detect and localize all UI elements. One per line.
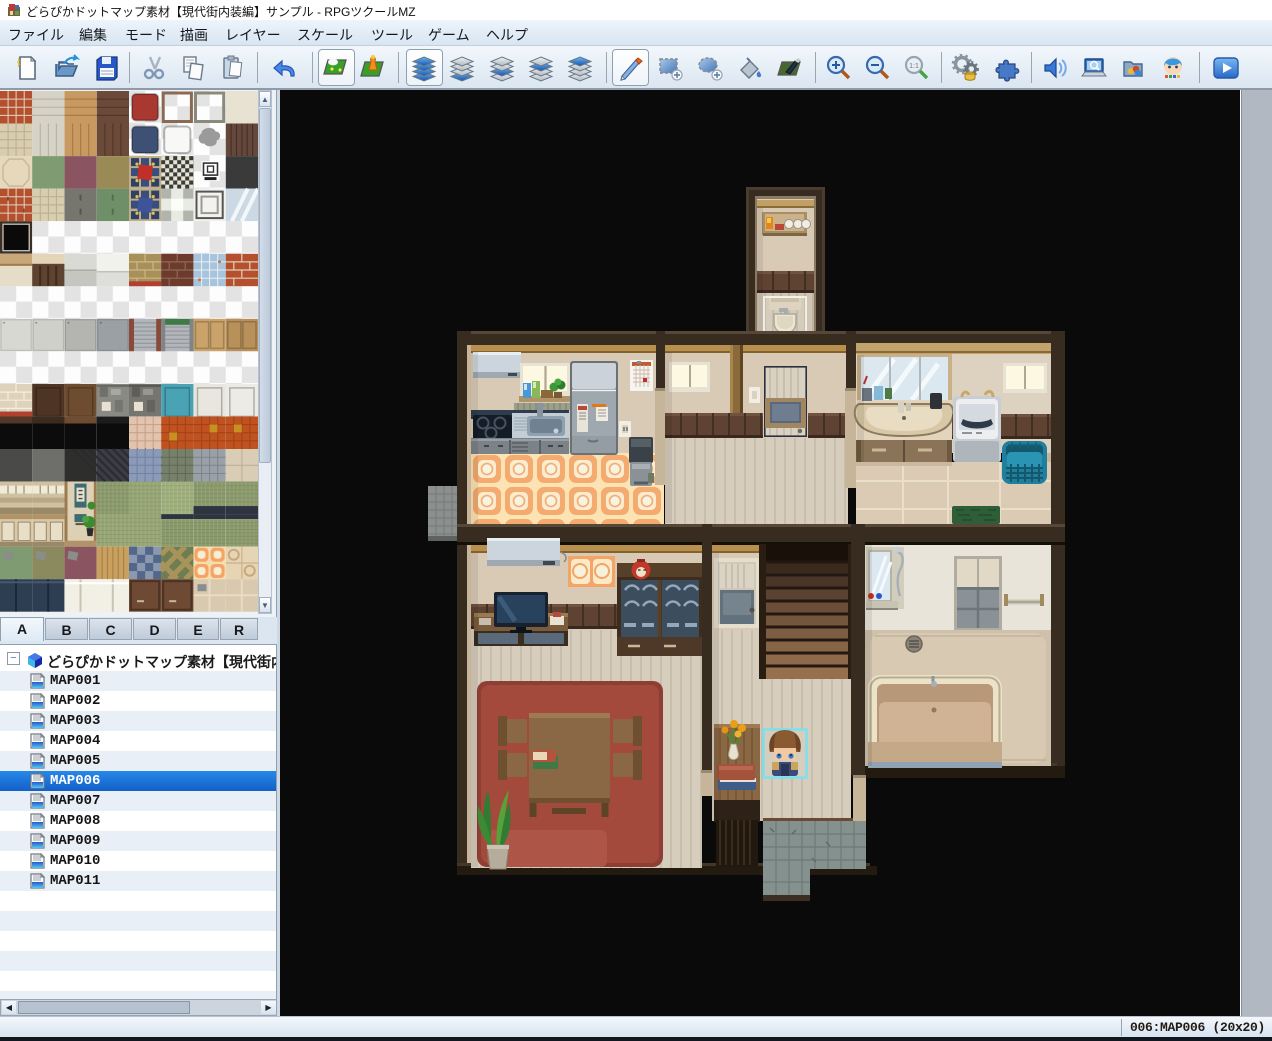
svg-text:1:1: 1:1 xyxy=(909,63,919,70)
